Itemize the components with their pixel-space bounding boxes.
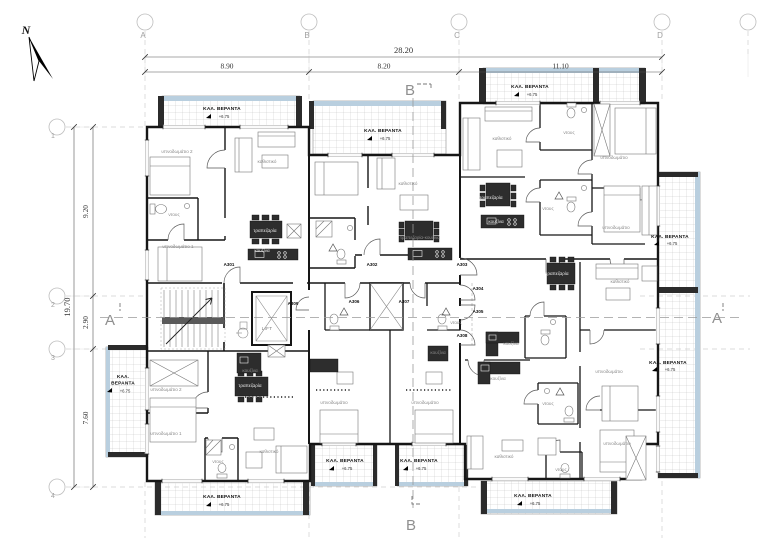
room-label: καθιστικό	[258, 158, 277, 164]
veranda-label: ΚΑΛ. ΒΕΡΑΝΤΑ	[514, 493, 552, 499]
room-label: υπνοδωμάτιο 2	[161, 148, 193, 154]
walls	[147, 103, 658, 481]
veranda-level: +6.75	[667, 241, 678, 246]
north-label: N	[21, 23, 32, 37]
section-letter-top: B	[405, 82, 415, 99]
room-label: ντους	[542, 206, 554, 211]
grid-bubble-A	[137, 14, 153, 30]
veranda-label: ΚΑΛ. ΒΕΡΑΝΤΑ	[326, 458, 364, 464]
level-marker-icon	[652, 367, 657, 372]
veranda-level: +6.75	[219, 114, 230, 119]
room-label: καθιστικό	[399, 180, 418, 186]
apartment-label: A302	[367, 262, 378, 267]
grid-row-label: 1	[51, 133, 55, 140]
staircase	[161, 288, 225, 349]
grid-column-label: C	[454, 31, 460, 40]
grid-column-label: D	[657, 31, 663, 40]
room-label: καθιστικό	[260, 448, 279, 454]
grid-bubble-B	[301, 14, 317, 30]
section-letter-left: A	[105, 312, 115, 329]
dimension-value: 11.10	[552, 62, 569, 71]
apartment-label: A306	[349, 299, 360, 304]
room-label: υπνοδωμάτιο	[595, 368, 623, 374]
veranda-label: ΚΑΛ. ΒΕΡΑΝΤΑ	[203, 106, 241, 112]
grid-row-label: 4	[51, 493, 55, 500]
dimension-value: 19.70	[62, 297, 72, 316]
grid-bubble-C	[451, 14, 467, 30]
veranda-level: +6.75	[120, 389, 131, 394]
room-label: ντους	[450, 320, 462, 325]
apartment-label: A309	[288, 301, 299, 306]
veranda-label: ΚΑΛ. ΒΕΡΑΝΤΑ	[364, 128, 402, 134]
veranda-label: ΚΑΛ. ΒΕΡΑΝΤΑ	[651, 234, 689, 240]
grid-column-label: B	[304, 31, 309, 40]
dimension-value: 7.60	[81, 411, 90, 424]
veranda-level: +6.75	[530, 501, 541, 506]
dimension-value: 8.20	[378, 62, 391, 71]
veranda-level: +6.75	[380, 136, 391, 141]
room-label: ντους	[563, 130, 575, 135]
lift-label: LIFT	[262, 326, 273, 331]
apartment-label: A307	[399, 299, 410, 304]
room-label: υπνοδωμάτιο 2	[150, 386, 182, 392]
room-label: υπνοδωμάτιο	[602, 224, 630, 230]
veranda-label: ΚΑΛ.	[117, 374, 129, 380]
room-label: ντους	[542, 401, 554, 406]
room-label: υπνοδωμάτιο 1	[162, 243, 194, 249]
room-label: ντους	[555, 467, 567, 472]
floor-plan-drawing: ABCD1234	[0, 0, 768, 543]
room-label: υπνοδωμάτιο	[603, 440, 631, 446]
veranda-label: ΚΑΛ. ΒΕΡΑΝΤΑ	[511, 84, 549, 90]
room-label: υπνοδωμάτιο	[600, 154, 628, 160]
veranda-label: ΒΕΡΑΝΤΑ	[111, 381, 135, 387]
dimension-value: 2.90	[81, 316, 90, 329]
room-label: ντους	[212, 459, 224, 464]
veranda-level: +6.75	[416, 466, 427, 471]
room-label: υπνοδωμάτιο	[320, 399, 348, 405]
grid-row-label: 2	[51, 302, 55, 309]
floor-plan-svg: ABCD1234	[0, 0, 768, 543]
dimension-value: 28.20	[394, 45, 413, 55]
north-arrow-icon	[29, 37, 53, 81]
veranda-level: +6.75	[527, 92, 538, 97]
apartment-label: A301	[224, 262, 235, 267]
grid-bubble-x	[740, 14, 756, 30]
room-label: καθιστικό	[611, 278, 630, 284]
room-label: υπνοδωμάτιο 1	[150, 430, 182, 436]
apartment-label: A305	[473, 309, 484, 314]
veranda-label: ΚΑΛ. ΒΕΡΑΝΤΑ	[649, 360, 687, 366]
level-marker-icon	[654, 241, 659, 246]
room-label: καθιστικό	[495, 453, 514, 459]
room-label: καθιστικό	[493, 135, 512, 141]
veranda-level: +6.75	[219, 502, 230, 507]
room-label: κουζίνα	[503, 341, 519, 347]
room-label: κουζίνα	[490, 376, 506, 382]
room-label: υπνοδωμάτιο	[411, 399, 439, 405]
section-letter-right: A	[712, 310, 722, 327]
apartment-label: A304	[473, 286, 484, 291]
apartment-label: A303	[457, 262, 468, 267]
room-label: ντους	[168, 212, 180, 217]
veranda-level: +6.75	[342, 466, 353, 471]
veranda-level: +6.75	[665, 367, 676, 372]
dimension-value: 8.90	[221, 62, 234, 71]
dimension-value: 9.20	[81, 205, 90, 218]
veranda-label: ΚΑΛ. ΒΕΡΑΝΤΑ	[203, 494, 241, 500]
grid-column-label: A	[140, 31, 146, 40]
grid-row-label: 3	[51, 355, 55, 362]
apartment-label: A308	[457, 333, 468, 338]
veranda-label: ΚΑΛ. ΒΕΡΑΝΤΑ	[400, 458, 438, 464]
section-letter-bottom: B	[406, 517, 416, 534]
grid-bubble-D	[654, 14, 670, 30]
